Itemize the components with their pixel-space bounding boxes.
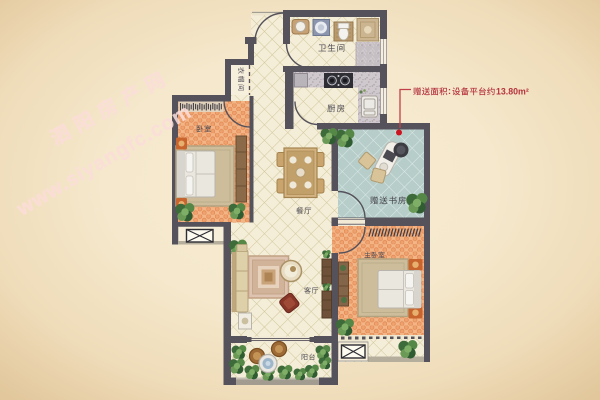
svg-text:13.80m²: 13.80m² [496,87,529,97]
svg-text::: : [448,86,451,96]
